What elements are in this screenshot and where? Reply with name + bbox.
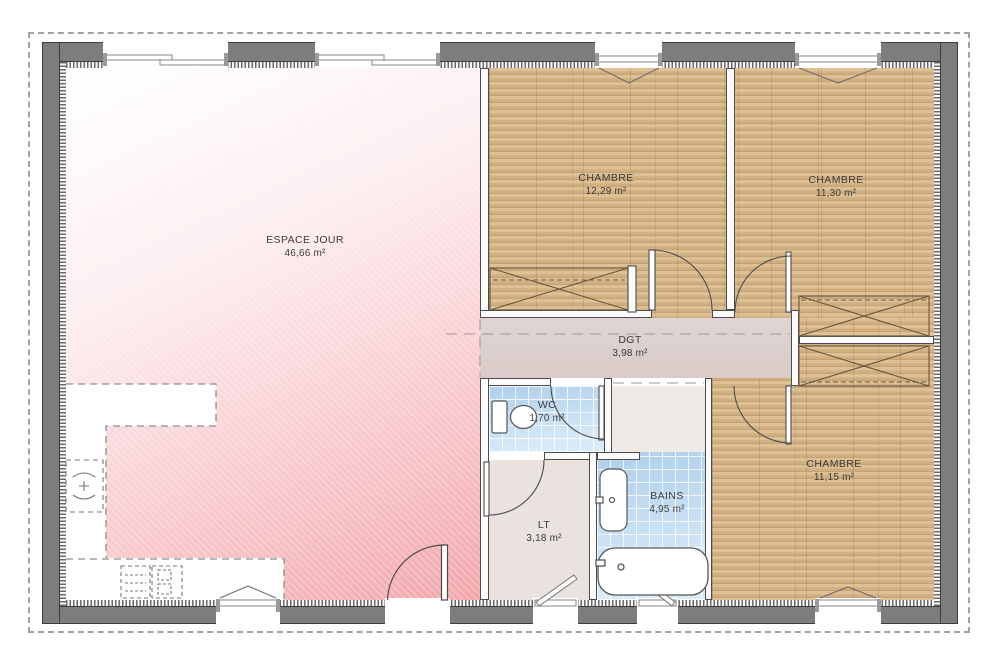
room-name: CHAMBRE xyxy=(808,174,863,187)
room-name: WC xyxy=(529,399,564,412)
room-name: ESPACE JOUR xyxy=(266,234,344,247)
window-chambre-3 xyxy=(815,587,881,624)
bathtub xyxy=(596,548,708,595)
window-chambre-2 xyxy=(795,42,881,83)
door-chambre-2 xyxy=(735,252,791,312)
room-area: 46,66 m² xyxy=(266,247,344,260)
kitchen-appliances xyxy=(121,566,182,598)
door-chambre-1 xyxy=(649,250,712,310)
room-label-espace-jour: ESPACE JOUR 46,66 m² xyxy=(266,234,344,260)
room-area: 11,30 m² xyxy=(808,187,863,200)
kitchen-zone-boundary xyxy=(66,384,284,599)
bathroom-sink xyxy=(596,469,627,531)
plan-symbols-overlay xyxy=(0,0,1000,650)
floor-plan: ESPACE JOUR 46,66 m² CHAMBRE 12,29 m² CH… xyxy=(0,0,1000,650)
room-area: 12,29 m² xyxy=(578,185,633,198)
room-name: DGT xyxy=(612,334,647,347)
room-area: 11,15 m² xyxy=(806,471,861,484)
room-label-lt: LT 3,18 m² xyxy=(526,519,561,545)
room-area: 3,98 m² xyxy=(612,347,647,360)
room-label-chambre-1: CHAMBRE 12,29 m² xyxy=(578,172,633,198)
closet-chambre-2 xyxy=(799,296,929,336)
room-label-dgt: DGT 3,98 m² xyxy=(612,334,647,360)
room-label-bains: BAINS 4,95 m² xyxy=(649,490,684,516)
room-label-chambre-2: CHAMBRE 11,30 m² xyxy=(808,174,863,200)
window-lt xyxy=(533,575,578,624)
window-kitchen xyxy=(216,586,280,624)
closet-chambre-1 xyxy=(490,266,636,312)
window-chambre-1 xyxy=(595,42,662,83)
door-entrance xyxy=(385,545,450,624)
room-name: CHAMBRE xyxy=(578,172,633,185)
room-area: 1,70 m² xyxy=(529,412,564,425)
room-area: 4,95 m² xyxy=(649,503,684,516)
door-lt xyxy=(484,460,544,516)
room-name: LT xyxy=(526,519,561,532)
water-heater xyxy=(66,460,103,512)
room-label-chambre-3: CHAMBRE 11,15 m² xyxy=(806,458,861,484)
window-espace-jour-2 xyxy=(315,42,440,68)
closet-chambre-3 xyxy=(799,346,929,386)
door-chambre-3 xyxy=(734,386,791,444)
room-name: BAINS xyxy=(649,490,684,503)
room-area: 3,18 m² xyxy=(526,532,561,545)
window-espace-jour-1 xyxy=(103,42,228,68)
room-label-wc: WC 1,70 m² xyxy=(529,399,564,425)
room-name: CHAMBRE xyxy=(806,458,861,471)
